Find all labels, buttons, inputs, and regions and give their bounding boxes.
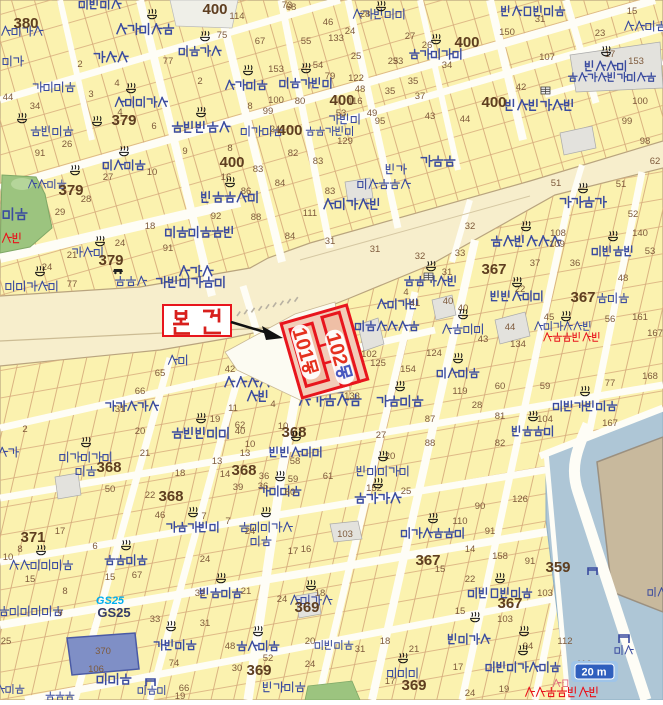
svg-text:33: 33 bbox=[455, 248, 466, 259]
svg-text:106: 106 bbox=[88, 664, 104, 675]
svg-text:91: 91 bbox=[35, 148, 46, 159]
svg-text:GS25: GS25 bbox=[97, 605, 130, 620]
svg-text:99: 99 bbox=[622, 116, 633, 127]
svg-text:16: 16 bbox=[221, 172, 232, 183]
svg-text:52: 52 bbox=[263, 653, 274, 664]
svg-text:32: 32 bbox=[465, 221, 476, 232]
svg-text:17: 17 bbox=[453, 662, 464, 673]
svg-text:108: 108 bbox=[550, 228, 566, 239]
svg-text:379: 379 bbox=[98, 252, 123, 269]
svg-text:369: 369 bbox=[401, 677, 426, 694]
svg-text:369: 369 bbox=[294, 599, 319, 616]
svg-text:67: 67 bbox=[255, 36, 266, 47]
svg-text:8: 8 bbox=[247, 101, 252, 112]
svg-text:77: 77 bbox=[67, 279, 78, 290]
svg-text:104: 104 bbox=[537, 414, 553, 425]
svg-text:6: 6 bbox=[92, 541, 97, 552]
svg-text:54: 54 bbox=[313, 60, 324, 71]
svg-text:77: 77 bbox=[163, 56, 174, 67]
svg-text:116: 116 bbox=[347, 96, 362, 107]
svg-text:367: 367 bbox=[481, 261, 506, 278]
svg-text:20: 20 bbox=[135, 426, 146, 437]
svg-text:83: 83 bbox=[313, 156, 324, 167]
svg-text:107: 107 bbox=[539, 52, 555, 63]
svg-text:35: 35 bbox=[385, 86, 396, 97]
svg-text:4: 4 bbox=[114, 78, 119, 89]
svg-text:28: 28 bbox=[81, 194, 92, 205]
svg-text:19: 19 bbox=[210, 414, 221, 425]
svg-text:19: 19 bbox=[499, 684, 510, 695]
svg-text:61: 61 bbox=[323, 471, 334, 482]
svg-text:34: 34 bbox=[442, 60, 453, 71]
svg-text:46: 46 bbox=[323, 17, 334, 28]
svg-text:379: 379 bbox=[111, 112, 136, 129]
svg-text:13: 13 bbox=[212, 456, 223, 467]
svg-text:88: 88 bbox=[425, 438, 436, 449]
svg-text:10: 10 bbox=[147, 167, 158, 178]
svg-text:86: 86 bbox=[241, 186, 252, 197]
svg-text:14: 14 bbox=[465, 544, 476, 555]
svg-text:91: 91 bbox=[485, 526, 496, 537]
svg-text:371: 371 bbox=[20, 529, 45, 546]
svg-text:154: 154 bbox=[400, 364, 416, 375]
svg-text:8: 8 bbox=[227, 143, 232, 154]
svg-text:91: 91 bbox=[163, 243, 174, 254]
svg-text:140: 140 bbox=[632, 228, 648, 239]
svg-text:27: 27 bbox=[103, 172, 114, 183]
svg-text:111: 111 bbox=[303, 208, 317, 219]
svg-text:25: 25 bbox=[351, 51, 362, 62]
svg-text:369: 369 bbox=[246, 662, 271, 679]
svg-text:9: 9 bbox=[57, 608, 62, 619]
svg-text:15: 15 bbox=[435, 564, 446, 575]
svg-text:4: 4 bbox=[403, 287, 408, 298]
svg-text:48: 48 bbox=[618, 273, 629, 284]
svg-text:31: 31 bbox=[200, 618, 211, 629]
svg-text:62: 62 bbox=[650, 156, 661, 167]
svg-text:17: 17 bbox=[288, 546, 299, 557]
svg-text:8: 8 bbox=[17, 544, 22, 555]
svg-text:11: 11 bbox=[228, 403, 238, 414]
svg-text:98: 98 bbox=[640, 136, 651, 147]
svg-text:119: 119 bbox=[452, 386, 467, 397]
svg-text:48: 48 bbox=[355, 84, 366, 95]
svg-text:100: 100 bbox=[268, 95, 284, 106]
svg-text:8: 8 bbox=[62, 586, 67, 597]
svg-text:14: 14 bbox=[220, 469, 231, 480]
svg-text:21: 21 bbox=[140, 448, 151, 459]
svg-text:25: 25 bbox=[1, 636, 12, 647]
svg-text:18: 18 bbox=[380, 636, 391, 647]
svg-text:22: 22 bbox=[145, 490, 156, 501]
svg-text:380: 380 bbox=[13, 15, 38, 32]
svg-text:10: 10 bbox=[245, 439, 256, 450]
svg-text:103: 103 bbox=[497, 614, 513, 625]
svg-text:400: 400 bbox=[219, 154, 244, 171]
svg-text:16: 16 bbox=[301, 544, 312, 555]
svg-text:65: 65 bbox=[155, 368, 166, 379]
svg-text:21: 21 bbox=[241, 586, 252, 597]
svg-text:24: 24 bbox=[270, 124, 281, 135]
svg-text:58: 58 bbox=[290, 456, 301, 467]
svg-text:51: 51 bbox=[616, 179, 627, 190]
svg-text:99: 99 bbox=[263, 106, 274, 117]
svg-text:24: 24 bbox=[305, 659, 316, 670]
svg-text:91: 91 bbox=[525, 556, 536, 567]
svg-text:48: 48 bbox=[225, 641, 236, 652]
svg-text:60: 60 bbox=[495, 381, 506, 392]
svg-text:368: 368 bbox=[158, 488, 183, 505]
svg-text:124: 124 bbox=[426, 348, 442, 359]
svg-text:9: 9 bbox=[182, 146, 187, 157]
svg-text:18: 18 bbox=[145, 221, 156, 232]
svg-text:43: 43 bbox=[425, 111, 436, 122]
svg-text:3: 3 bbox=[88, 89, 93, 100]
svg-text:2: 2 bbox=[22, 424, 27, 435]
svg-text:15: 15 bbox=[105, 572, 116, 583]
svg-text:112: 112 bbox=[557, 636, 572, 647]
svg-text:109: 109 bbox=[549, 239, 565, 250]
svg-text:10: 10 bbox=[3, 552, 14, 563]
svg-text:31: 31 bbox=[325, 236, 336, 247]
svg-text:81: 81 bbox=[495, 411, 506, 422]
svg-text:80: 80 bbox=[295, 96, 306, 107]
svg-text:75: 75 bbox=[217, 30, 228, 41]
svg-text:110: 110 bbox=[452, 516, 467, 527]
svg-text:74: 74 bbox=[169, 658, 180, 669]
svg-text:92: 92 bbox=[211, 211, 222, 222]
svg-text:52: 52 bbox=[628, 209, 639, 220]
svg-text:83: 83 bbox=[325, 186, 336, 197]
svg-text:400: 400 bbox=[277, 122, 302, 139]
svg-text:53: 53 bbox=[645, 246, 656, 257]
svg-text:18: 18 bbox=[315, 588, 326, 599]
svg-text:18: 18 bbox=[175, 468, 186, 479]
svg-text:39: 39 bbox=[233, 482, 244, 493]
svg-text:7: 7 bbox=[225, 516, 230, 527]
svg-text:84: 84 bbox=[285, 231, 296, 242]
svg-text:30: 30 bbox=[232, 663, 243, 674]
svg-text:59: 59 bbox=[288, 474, 299, 485]
svg-text:15: 15 bbox=[455, 606, 466, 617]
svg-text:53: 53 bbox=[336, 108, 347, 119]
svg-text:82: 82 bbox=[288, 148, 299, 159]
svg-text:23: 23 bbox=[595, 28, 606, 39]
svg-text:37: 37 bbox=[415, 91, 426, 102]
svg-text:36: 36 bbox=[570, 258, 581, 269]
svg-text:79: 79 bbox=[325, 71, 336, 82]
svg-text:26: 26 bbox=[422, 40, 433, 51]
svg-text:20 m: 20 m bbox=[581, 667, 606, 679]
svg-text:400: 400 bbox=[454, 34, 479, 51]
svg-text:153: 153 bbox=[268, 64, 284, 75]
svg-text:24: 24 bbox=[465, 688, 476, 699]
svg-text:32: 32 bbox=[195, 588, 206, 599]
svg-text:62: 62 bbox=[235, 420, 246, 431]
svg-text:51: 51 bbox=[551, 178, 562, 189]
svg-text:26: 26 bbox=[62, 139, 73, 150]
svg-text:33: 33 bbox=[150, 614, 161, 625]
svg-text:103: 103 bbox=[537, 588, 553, 599]
svg-text:37: 37 bbox=[530, 258, 541, 269]
svg-text:367: 367 bbox=[570, 289, 595, 306]
svg-text:126: 126 bbox=[512, 494, 528, 505]
svg-text:19: 19 bbox=[175, 691, 186, 700]
svg-text:31: 31 bbox=[355, 644, 366, 655]
svg-text:167: 167 bbox=[647, 328, 663, 339]
svg-text:73: 73 bbox=[282, 0, 293, 11]
svg-text:367: 367 bbox=[497, 595, 522, 612]
svg-text:42: 42 bbox=[516, 82, 527, 93]
svg-text:24: 24 bbox=[200, 554, 211, 565]
svg-text:17: 17 bbox=[55, 526, 66, 537]
svg-text:150: 150 bbox=[499, 27, 515, 38]
svg-text:400: 400 bbox=[202, 1, 227, 18]
svg-text:88: 88 bbox=[251, 212, 262, 223]
svg-text:24: 24 bbox=[115, 238, 126, 249]
svg-text:100: 100 bbox=[632, 96, 648, 107]
svg-text:158: 158 bbox=[492, 551, 508, 562]
svg-text:41: 41 bbox=[410, 298, 421, 309]
svg-text:4: 4 bbox=[270, 399, 275, 410]
svg-text:28: 28 bbox=[360, 9, 371, 20]
svg-text:168: 168 bbox=[642, 371, 658, 382]
svg-text:36: 36 bbox=[258, 481, 269, 492]
svg-text:21: 21 bbox=[67, 250, 78, 261]
svg-text:60: 60 bbox=[285, 487, 296, 498]
svg-text:27: 27 bbox=[405, 31, 416, 42]
svg-text:122: 122 bbox=[348, 73, 364, 84]
svg-text:153: 153 bbox=[628, 56, 644, 67]
svg-text:133: 133 bbox=[344, 391, 360, 402]
svg-text:370: 370 bbox=[95, 646, 111, 657]
svg-text:359: 359 bbox=[545, 559, 570, 576]
svg-text:114: 114 bbox=[229, 11, 244, 22]
svg-text:31: 31 bbox=[370, 244, 381, 255]
svg-text:129: 129 bbox=[337, 136, 353, 147]
svg-text:82: 82 bbox=[495, 438, 506, 449]
svg-text:25: 25 bbox=[401, 486, 412, 497]
svg-text:66: 66 bbox=[135, 386, 146, 397]
svg-text:4: 4 bbox=[117, 107, 122, 118]
svg-text:95: 95 bbox=[375, 116, 386, 127]
svg-text:368: 368 bbox=[96, 459, 121, 476]
svg-text:15: 15 bbox=[627, 6, 638, 17]
svg-text:44: 44 bbox=[505, 322, 516, 333]
svg-text:27: 27 bbox=[376, 430, 387, 441]
svg-text:44: 44 bbox=[3, 92, 14, 103]
svg-text:55: 55 bbox=[301, 36, 312, 47]
svg-text:17: 17 bbox=[385, 676, 396, 687]
svg-text:87: 87 bbox=[425, 414, 436, 425]
svg-text:31: 31 bbox=[535, 14, 546, 25]
svg-text:45: 45 bbox=[544, 312, 555, 323]
svg-text:84: 84 bbox=[275, 178, 286, 189]
svg-text:50: 50 bbox=[105, 484, 116, 495]
svg-text:10: 10 bbox=[278, 421, 289, 432]
svg-text:59: 59 bbox=[540, 381, 551, 392]
svg-text:34: 34 bbox=[30, 101, 41, 112]
svg-text:31: 31 bbox=[442, 267, 453, 278]
svg-text:125: 125 bbox=[370, 358, 386, 369]
svg-text:103: 103 bbox=[337, 529, 353, 540]
svg-text:29: 29 bbox=[55, 207, 66, 218]
svg-text:20: 20 bbox=[305, 636, 316, 647]
svg-text:32: 32 bbox=[415, 251, 426, 262]
svg-text:21: 21 bbox=[409, 644, 420, 655]
svg-text:24: 24 bbox=[245, 526, 256, 537]
svg-text:24: 24 bbox=[345, 26, 356, 37]
svg-text:46: 46 bbox=[155, 510, 166, 521]
svg-text:90: 90 bbox=[475, 501, 486, 512]
svg-text:7: 7 bbox=[201, 511, 206, 522]
svg-text:56: 56 bbox=[605, 314, 616, 325]
svg-text:368: 368 bbox=[231, 462, 256, 479]
svg-text:77: 77 bbox=[605, 378, 616, 389]
svg-text:2: 2 bbox=[197, 76, 202, 87]
svg-text:161: 161 bbox=[632, 312, 648, 323]
svg-text:31: 31 bbox=[115, 404, 126, 415]
svg-text:400: 400 bbox=[481, 94, 506, 111]
svg-text:67: 67 bbox=[132, 570, 143, 581]
svg-text:44: 44 bbox=[460, 114, 471, 125]
svg-text:94: 94 bbox=[523, 641, 534, 652]
svg-text:2: 2 bbox=[77, 59, 82, 70]
svg-text:35: 35 bbox=[408, 76, 419, 87]
svg-text:6: 6 bbox=[151, 121, 156, 132]
svg-text:40: 40 bbox=[443, 296, 454, 307]
svg-text:28: 28 bbox=[472, 400, 483, 411]
svg-text:15: 15 bbox=[25, 574, 36, 585]
svg-text:83: 83 bbox=[253, 164, 264, 175]
svg-text:24: 24 bbox=[277, 594, 288, 605]
svg-text:134: 134 bbox=[510, 339, 526, 350]
svg-text:22: 22 bbox=[465, 574, 476, 585]
svg-text:43: 43 bbox=[478, 334, 489, 345]
svg-text:33: 33 bbox=[393, 56, 404, 67]
svg-text:167: 167 bbox=[602, 418, 618, 429]
svg-text:133: 133 bbox=[328, 33, 344, 44]
